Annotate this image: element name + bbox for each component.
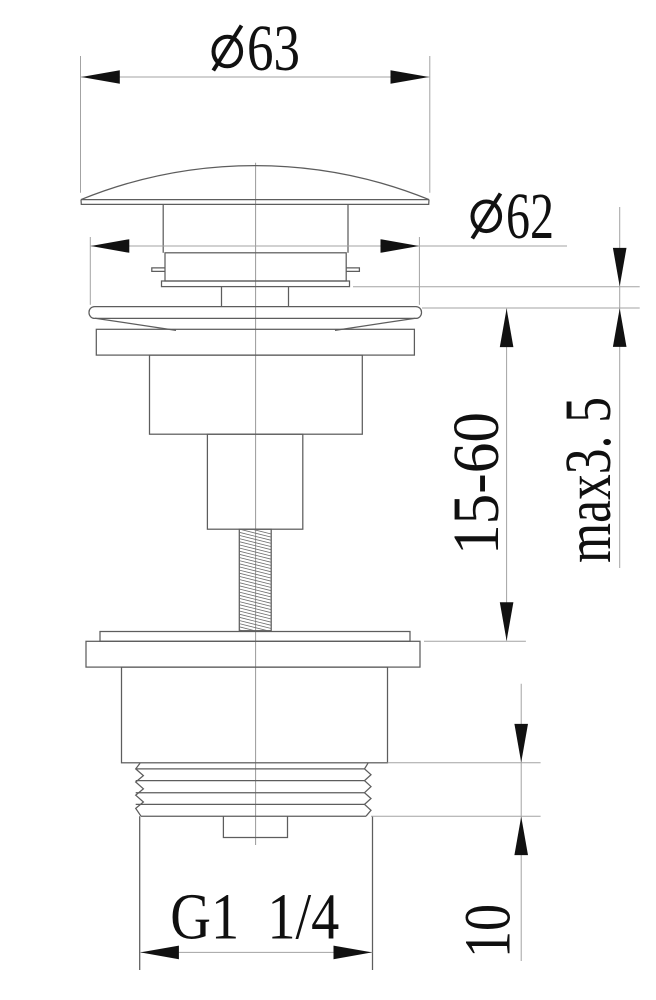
svg-text:62: 62 bbox=[506, 180, 554, 253]
svg-text:G1 1/4: G1 1/4 bbox=[170, 881, 339, 954]
svg-text:max3. 5: max3. 5 bbox=[552, 397, 625, 563]
svg-text:10: 10 bbox=[452, 904, 525, 958]
svg-text:15-60: 15-60 bbox=[440, 412, 513, 555]
svg-text:63: 63 bbox=[247, 12, 300, 85]
